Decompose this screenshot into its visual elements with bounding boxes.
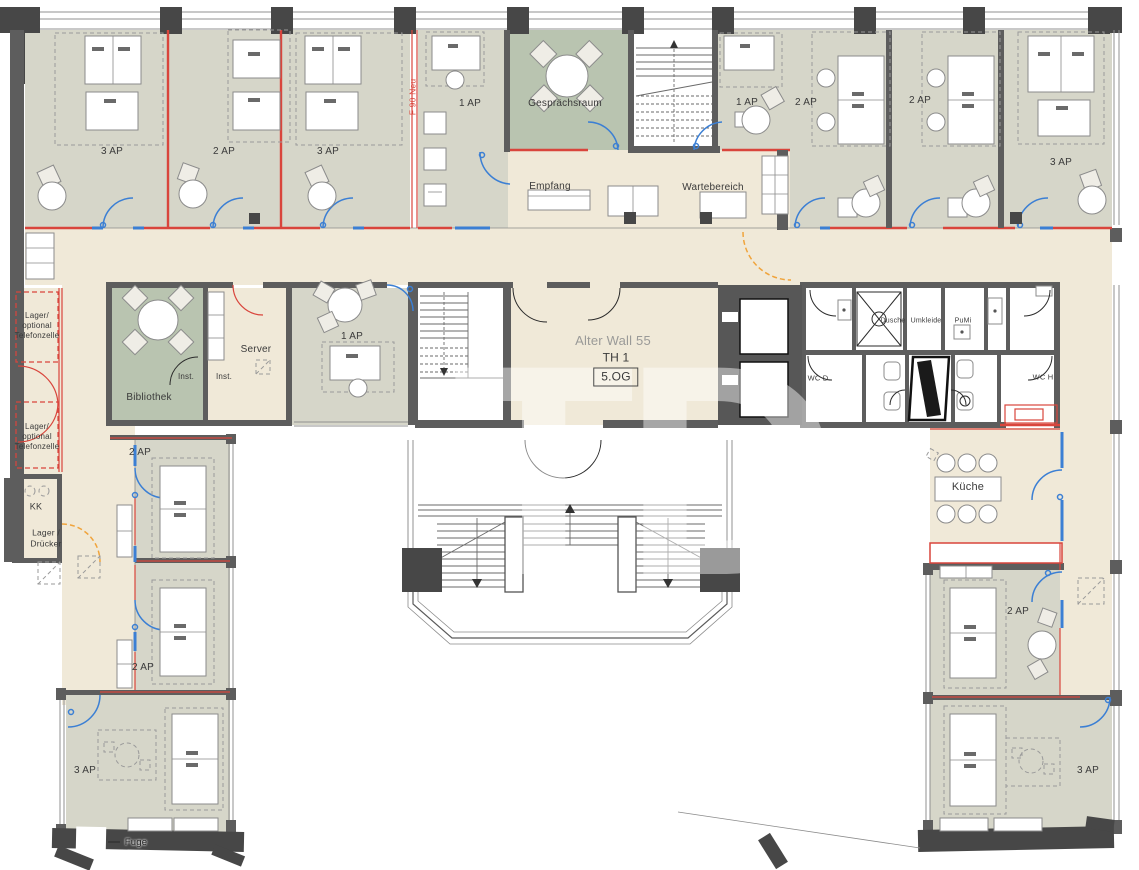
label-office-3ap-se: 3 AP xyxy=(1077,765,1099,778)
label-office-2ap-w1: 2 AP xyxy=(129,447,151,460)
label-staircase: TH 1 xyxy=(603,351,630,366)
label-joint: Fuge xyxy=(125,837,147,849)
label-server-room: Server xyxy=(241,344,272,357)
label-address: Alter Wall 55 xyxy=(575,333,651,349)
label-office-1ap-right: 1 AP xyxy=(736,97,758,110)
label-office-2ap-ne2: 2 AP xyxy=(909,95,931,108)
label-fire-wall: F 90 Neu xyxy=(408,79,419,116)
label-wc-women: WC D xyxy=(808,373,829,382)
label-office-1ap-left: 1 AP xyxy=(459,98,481,111)
label-wc-men: WC H xyxy=(1033,372,1054,381)
label-storage-phonebooth-2: Lager/ optional Telefonzelle xyxy=(15,422,60,452)
label-floor: 5.OG xyxy=(593,368,638,387)
label-inst-1: Inst. xyxy=(178,372,194,382)
label-reception: Empfang xyxy=(529,181,570,194)
label-office-1ap-mid: 1 AP xyxy=(341,331,363,344)
label-kitchen: Küche xyxy=(952,481,984,495)
label-shower: Dusche xyxy=(881,318,906,327)
floor-plan-drawing xyxy=(0,0,1139,870)
label-office-3ap-nw2: 3 AP xyxy=(317,146,339,159)
label-office-3ap-ne: 3 AP xyxy=(1050,157,1072,170)
label-office-3ap-sw: 3 AP xyxy=(74,765,96,778)
courtyard-staircase xyxy=(402,440,740,644)
label-storage-phonebooth-1: Lager/ optional Telefonzelle xyxy=(15,311,60,341)
label-inst-2: Inst. xyxy=(216,372,232,382)
label-office-2ap-e: 2 AP xyxy=(1007,606,1029,619)
label-storage-printer: Lager / Drücker xyxy=(30,527,61,548)
label-office-3ap-nw1: 3 AP xyxy=(101,146,123,159)
label-office-2ap-nw: 2 AP xyxy=(213,146,235,159)
label-office-2ap-w2: 2 AP xyxy=(132,662,154,675)
label-changing-room: Umkleide xyxy=(911,318,942,327)
label-cleaning-room: PuMi xyxy=(955,318,972,327)
floor-plan: TD 3 AP 2 AP 3 AP 1 AP Gesprächsraum 1 A… xyxy=(0,0,1139,870)
label-meeting-room: Gesprächsraum xyxy=(528,98,602,111)
elevator-shaft xyxy=(718,285,802,425)
label-waiting-area: Wartebereich xyxy=(682,182,744,195)
label-library: Bibliothek xyxy=(126,392,171,405)
label-office-2ap-ne1: 2 AP xyxy=(795,97,817,110)
label-kk: KK xyxy=(30,501,42,512)
